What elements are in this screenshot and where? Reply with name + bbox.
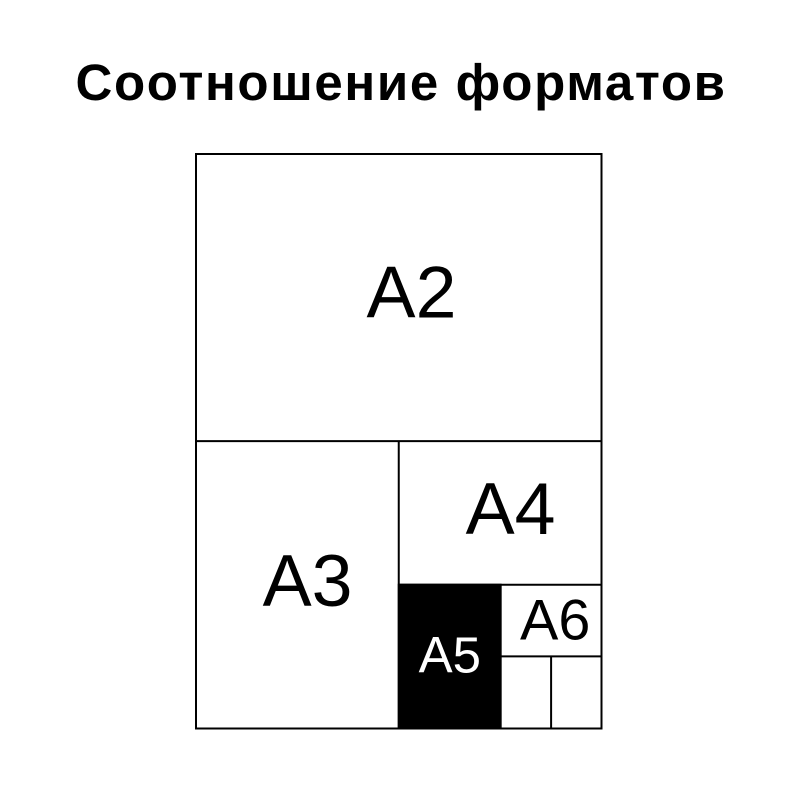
svg-text:A4: A4 bbox=[466, 467, 556, 550]
svg-text:A3: A3 bbox=[263, 539, 353, 622]
svg-text:Соотношение форматов: Соотношение форматов bbox=[76, 54, 727, 111]
svg-text:A2: A2 bbox=[367, 251, 457, 334]
svg-text:A6: A6 bbox=[520, 589, 590, 653]
svg-text:A5: A5 bbox=[419, 626, 481, 683]
